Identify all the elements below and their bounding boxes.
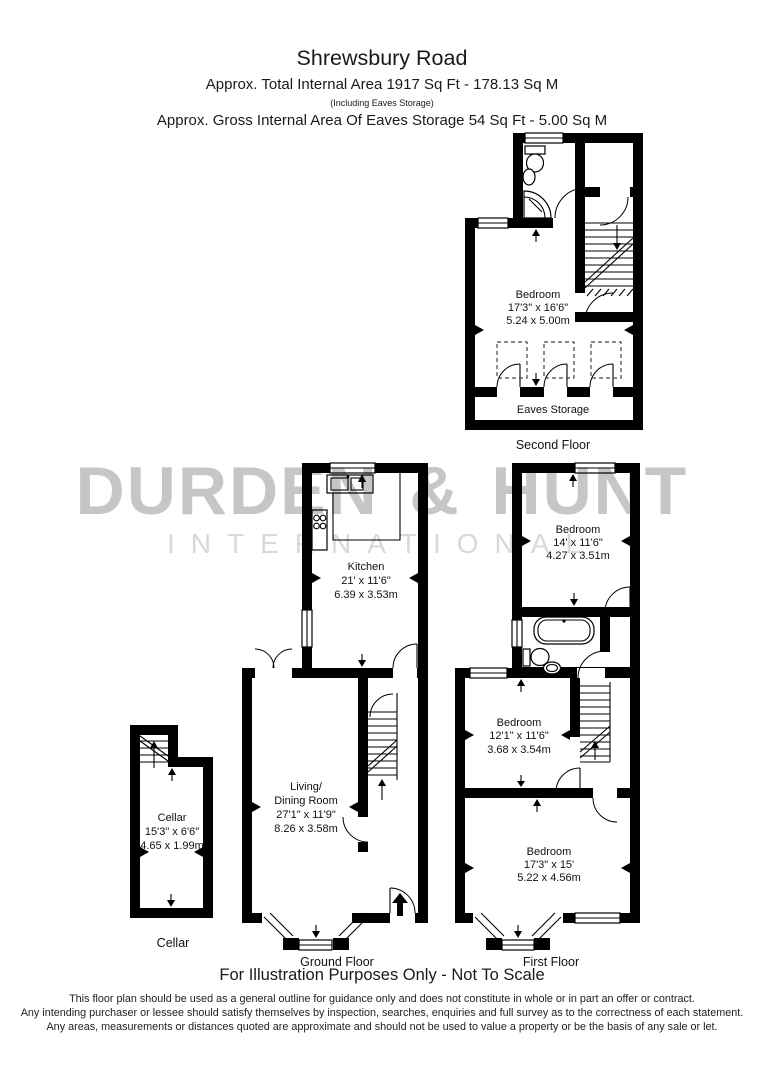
floor-label-second: Second Floor (516, 438, 590, 452)
floorplan-page: Shrewsbury Road Approx. Total Internal A… (0, 0, 764, 1080)
room-label: Bedroom (527, 846, 572, 858)
french-doors (255, 649, 292, 668)
room-dims-m: 4.27 x 3.51m (546, 550, 610, 562)
cellar-plan: Cellar 15'3" x 6'6" 4.65 x 1.99m Cellar (130, 725, 213, 950)
room-dims-ft: 27'1" x 11'9" (276, 809, 336, 821)
second-floor-plan: Bedroom 17'3" x 16'6" 5.24 x 5.00m Eaves… (465, 133, 643, 452)
room-label: Cellar (158, 812, 187, 824)
room-label: Kitchen (348, 561, 385, 573)
room-label: Bedroom (556, 524, 601, 536)
room-dims-ft: 17'3" x 15' (524, 859, 574, 871)
room-dims-ft: 15'3" x 6'6" (145, 826, 199, 838)
first-floor-plan: Bedroom 14' x 11'6" 4.27 x 3.51m Bedroom… (455, 463, 640, 969)
room-dims-m: 3.68 x 3.54m (487, 744, 551, 756)
room-label: Bedroom (516, 289, 561, 301)
room-dims-m: 6.39 x 3.53m (334, 589, 398, 601)
room-label: Living/ (290, 781, 323, 793)
bathtub (534, 617, 594, 644)
room-dims-ft: 17'3" x 16'6" (508, 302, 568, 314)
floorplan-svg: Bedroom 17'3" x 16'6" 5.24 x 5.00m Eaves… (0, 0, 764, 1080)
hob (312, 510, 327, 550)
room-dims-ft: 12'1" x 11'6" (489, 730, 549, 742)
room-label-2: Dining Room (274, 795, 338, 807)
disclaimer-line-3: Any areas, measurements or distances quo… (0, 1021, 764, 1033)
sink (544, 662, 561, 674)
room-dims-m: 5.24 x 5.00m (506, 315, 570, 327)
toilet (523, 649, 549, 667)
room-dims-m: 5.22 x 4.56m (517, 872, 581, 884)
floor-label-cellar: Cellar (157, 936, 190, 950)
room-dims-m: 4.65 x 1.99m (140, 840, 204, 852)
room-label: Eaves Storage (517, 404, 589, 416)
room-dims-ft: 14' x 11'6" (553, 537, 603, 549)
illustration-note: For Illustration Purposes Only - Not To … (0, 966, 764, 985)
disclaimer-line-2: Any intending purchaser or lessee should… (0, 1007, 764, 1019)
room-dims-ft: 21' x 11'6" (341, 575, 391, 587)
disclaimer-line-1: This floor plan should be used as a gene… (0, 993, 764, 1005)
ground-floor-plan: Kitchen 21' x 11'6" 6.39 x 3.53m Living/… (242, 463, 428, 969)
room-label: Bedroom (497, 717, 542, 729)
toilet (525, 146, 545, 172)
kitchen-sink (327, 475, 373, 493)
sink (523, 169, 535, 185)
room-dims-m: 8.26 x 3.58m (274, 823, 338, 835)
